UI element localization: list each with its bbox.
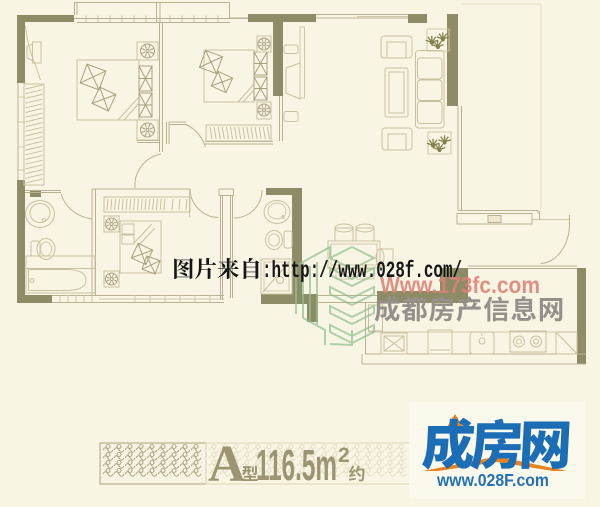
svg-text:www.028F.com: www.028F.com: [436, 470, 549, 490]
svg-text:A: A: [208, 436, 246, 493]
svg-text:2: 2: [338, 444, 350, 467]
svg-text::http://www.028f.com/: :http://www.028f.com/: [262, 258, 462, 285]
svg-text:116.5m: 116.5m: [256, 441, 337, 490]
